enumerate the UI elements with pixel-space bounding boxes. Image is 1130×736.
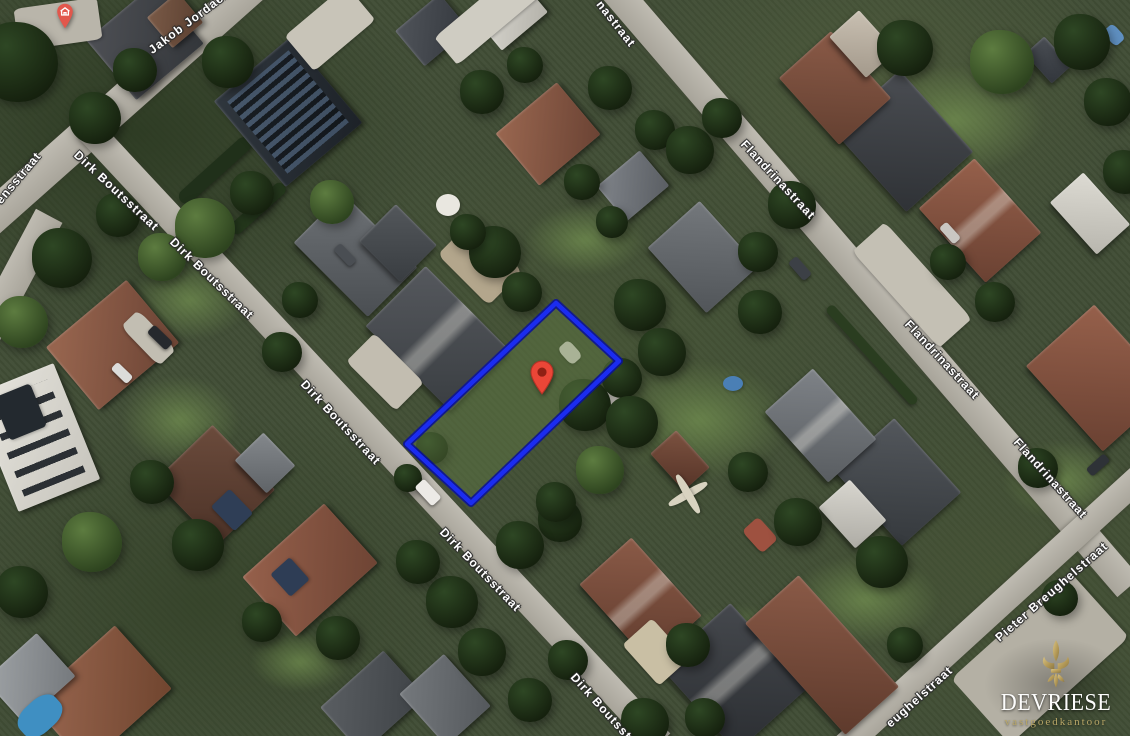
- home-pin[interactable]: [56, 3, 74, 29]
- satellite-map-canvas[interactable]: Jakob JordaensstraatensstraatDirk Boutss…: [0, 0, 1130, 736]
- brand-name: DEVRIESE: [993, 691, 1118, 715]
- fleur-de-lis-icon: [1039, 640, 1073, 690]
- brand-tagline: vastgoedkantoor: [988, 716, 1124, 728]
- devriese-logo: DEVRIESE vastgoedkantoor: [984, 638, 1128, 732]
- property-pin[interactable]: [529, 360, 555, 395]
- property-boundary-overlay: [0, 0, 1130, 736]
